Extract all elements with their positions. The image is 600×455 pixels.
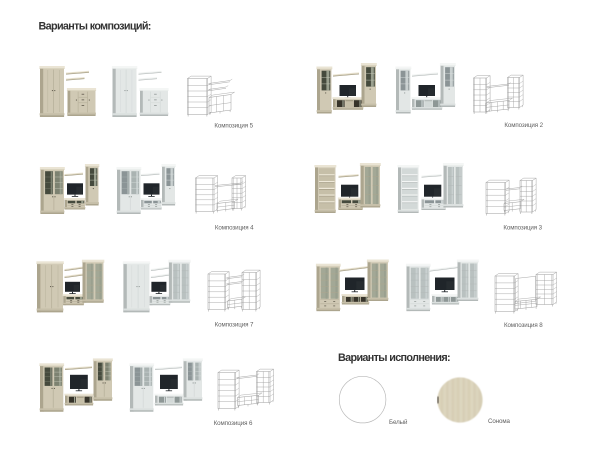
- svg-text:Варианты композиций:: Варианты композиций:: [39, 20, 151, 32]
- svg-text:Композиция 4: Композиция 4: [215, 225, 254, 232]
- svg-text:Композиция 2: Композиция 2: [504, 122, 543, 129]
- svg-text:Сонома: Сонома: [488, 418, 511, 425]
- svg-text:Варианты исполнения:: Варианты исполнения:: [338, 352, 450, 364]
- svg-text:Композиция 8: Композиция 8: [504, 322, 543, 329]
- svg-text:Белый: Белый: [389, 419, 408, 426]
- svg-text:Композиция 3: Композиция 3: [503, 225, 542, 232]
- svg-text:Композиция 6: Композиция 6: [214, 420, 253, 427]
- svg-text:Композиция 5: Композиция 5: [214, 122, 253, 129]
- svg-text:Композиция 7: Композиция 7: [215, 322, 254, 329]
